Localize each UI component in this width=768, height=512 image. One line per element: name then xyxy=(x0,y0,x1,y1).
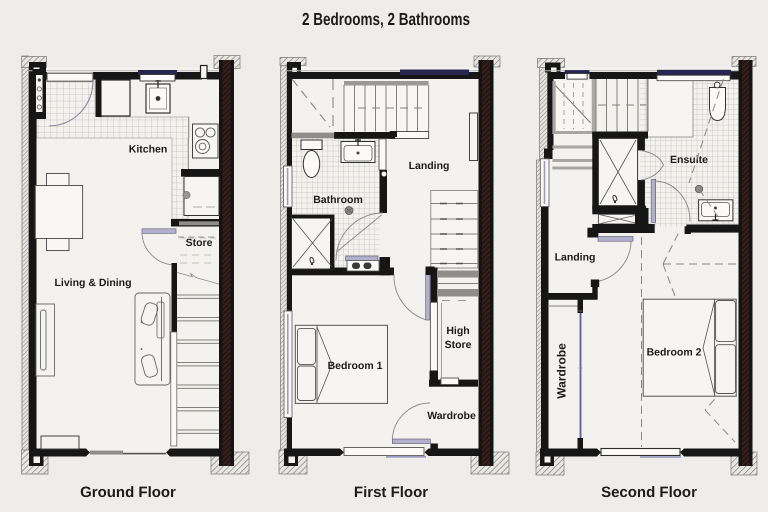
svg-text:Bedroom 2: Bedroom 2 xyxy=(647,347,702,359)
svg-text:Bathroom: Bathroom xyxy=(313,194,363,206)
svg-text:Living & Dining: Living & Dining xyxy=(55,277,132,289)
svg-text:Wardrobe: Wardrobe xyxy=(555,343,569,399)
svg-text:2 Bedrooms, 2 Bathrooms: 2 Bedrooms, 2 Bathrooms xyxy=(302,9,470,29)
svg-text:Kitchen: Kitchen xyxy=(129,144,168,156)
svg-text:Second Floor: Second Floor xyxy=(601,484,697,501)
svg-text:Ensuite: Ensuite xyxy=(670,154,708,166)
svg-text:High: High xyxy=(446,325,469,337)
svg-text:Landing: Landing xyxy=(409,160,450,172)
svg-text:Wardrobe: Wardrobe xyxy=(427,410,476,422)
svg-text:Bedroom 1: Bedroom 1 xyxy=(328,360,383,372)
svg-text:Store: Store xyxy=(445,339,472,351)
svg-text:Store: Store xyxy=(186,237,213,249)
svg-text:First Floor: First Floor xyxy=(354,484,428,501)
svg-text:Ground Floor: Ground Floor xyxy=(80,484,176,501)
svg-text:Landing: Landing xyxy=(555,252,596,264)
